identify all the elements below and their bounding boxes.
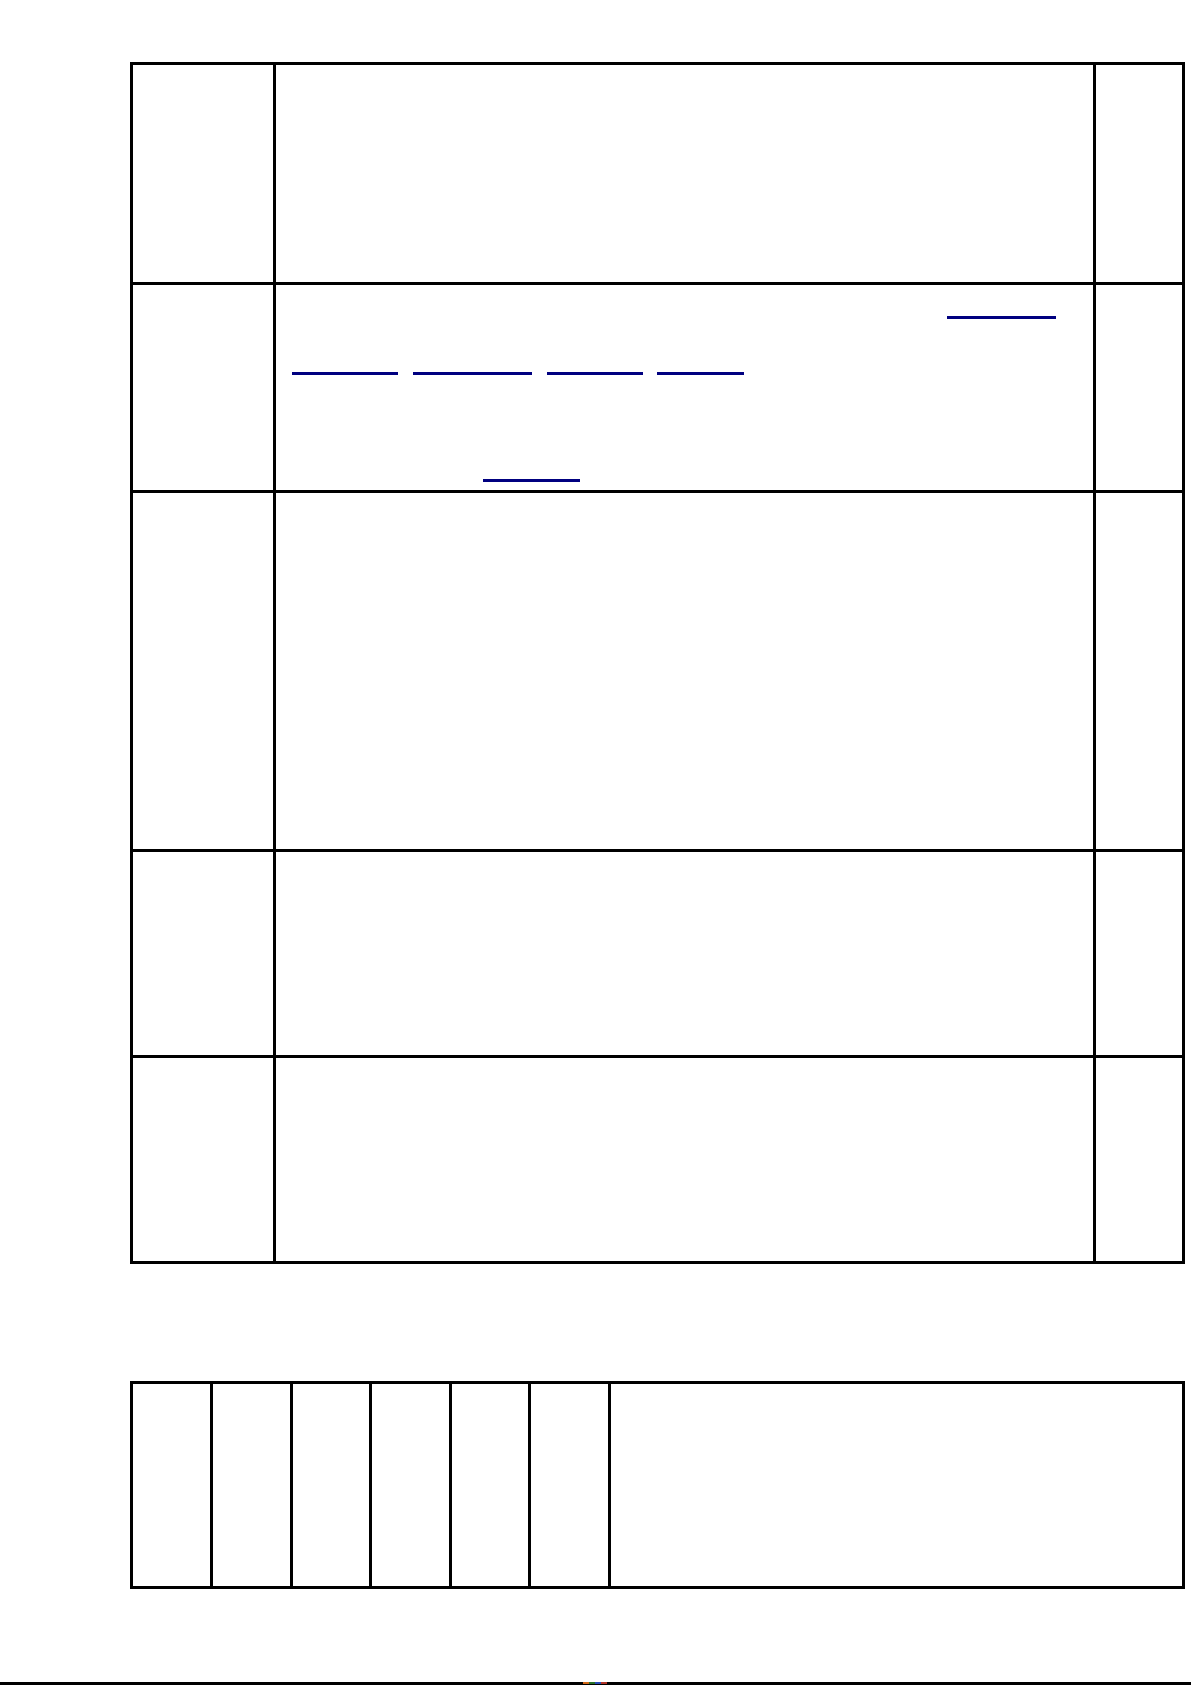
hyperlink-underline-middle-3[interactable] xyxy=(547,372,643,375)
top-table-cell-r3-ref xyxy=(1095,492,1184,851)
top-table-row-3 xyxy=(132,492,1184,851)
top-table-cell-r5-content xyxy=(275,1057,1095,1263)
top-table-cell-r5-ref xyxy=(1095,1057,1184,1263)
top-table-cell-r1-ref xyxy=(1095,64,1184,284)
top-table-row-4 xyxy=(132,851,1184,1057)
bottom-table-cell-4 xyxy=(371,1383,451,1588)
hyperlink-underline-middle-4[interactable] xyxy=(657,372,744,375)
top-table xyxy=(130,62,1185,1264)
top-table-cell-r1-content xyxy=(275,64,1095,284)
top-table-row-1 xyxy=(132,64,1184,284)
top-table-cell-r4-ref xyxy=(1095,851,1184,1057)
bottom-table-cell-2 xyxy=(212,1383,292,1588)
top-table-cell-r1-label xyxy=(132,64,275,284)
top-table-cell-r3-content xyxy=(275,492,1095,851)
hyperlink-underline-middle-1[interactable] xyxy=(292,372,398,375)
bottom-table-cell-3 xyxy=(292,1383,371,1588)
bottom-table xyxy=(130,1381,1185,1589)
document-page: { "page": { "background": "#ffffff", "bo… xyxy=(0,0,1191,1685)
hyperlink-underline-bottom[interactable] xyxy=(483,479,580,482)
bottom-table-cell-1 xyxy=(132,1383,212,1588)
top-table-row-2 xyxy=(132,284,1184,492)
bottom-table-cell-5 xyxy=(451,1383,530,1588)
hyperlink-underline-top-right[interactable] xyxy=(947,316,1056,319)
hyperlink-underline-middle-2[interactable] xyxy=(413,372,532,375)
bottom-table-cell-6 xyxy=(530,1383,610,1588)
bottom-edge-color-specks xyxy=(583,1682,607,1684)
top-table-cell-r5-label xyxy=(132,1057,275,1263)
top-table-cell-r2-content xyxy=(275,284,1095,492)
top-table-cell-r2-ref xyxy=(1095,284,1184,492)
bottom-table-cell-wide xyxy=(610,1383,1184,1588)
top-table-cell-r3-label xyxy=(132,492,275,851)
top-table-cell-r4-content xyxy=(275,851,1095,1057)
top-table-row-5 xyxy=(132,1057,1184,1263)
bottom-table-row-1 xyxy=(132,1383,1184,1588)
top-table-cell-r2-label xyxy=(132,284,275,492)
top-table-cell-r4-label xyxy=(132,851,275,1057)
